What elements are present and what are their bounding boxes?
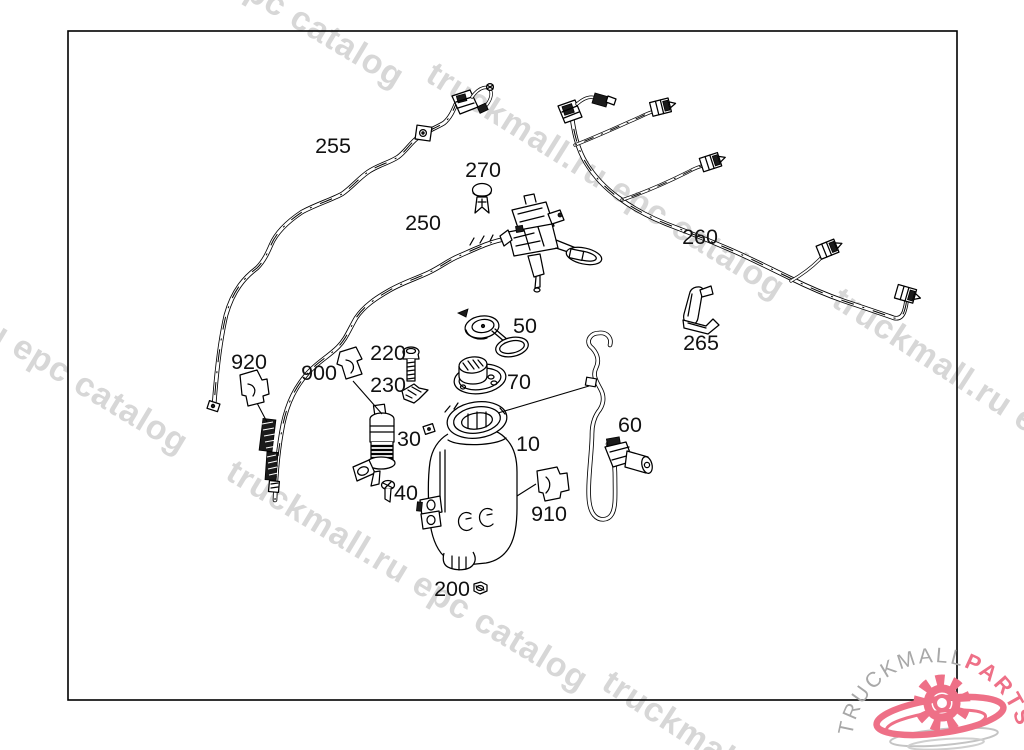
rivet-270 bbox=[473, 184, 492, 214]
hose-clip bbox=[415, 125, 432, 141]
part-label-10[interactable]: 10 bbox=[516, 432, 540, 456]
part-label-220[interactable]: 220 bbox=[370, 341, 406, 365]
part-label-60[interactable]: 60 bbox=[618, 413, 642, 437]
diagram-canvas: truckmall.ru epc catalog truckmall.ru ep… bbox=[0, 0, 1024, 750]
connector-910 bbox=[537, 467, 569, 501]
part-label-920[interactable]: 920 bbox=[231, 350, 267, 374]
washer-jet bbox=[699, 151, 727, 172]
leader-910 bbox=[517, 484, 536, 496]
part-label-265[interactable]: 265 bbox=[683, 331, 719, 355]
watermark-stripe: truckmall.ru epc catalog bbox=[0, 215, 195, 461]
watermark-stripe: truckmall.ru epc catalog bbox=[826, 280, 1024, 538]
catalog-page: truckmall.ru epc catalog truckmall.ru ep… bbox=[0, 0, 1024, 750]
washer-jet bbox=[650, 97, 678, 117]
part-label-910[interactable]: 910 bbox=[531, 502, 567, 526]
logo-gear-icon bbox=[914, 675, 970, 731]
pump-30 bbox=[353, 404, 395, 486]
washer-jet bbox=[894, 285, 922, 305]
screw-40 bbox=[382, 481, 395, 503]
washer-jet bbox=[816, 237, 844, 259]
part-label-40[interactable]: 40 bbox=[394, 481, 418, 505]
part-label-200[interactable]: 200 bbox=[434, 577, 470, 601]
part-label-270[interactable]: 270 bbox=[465, 158, 501, 182]
part-label-250[interactable]: 250 bbox=[405, 211, 441, 235]
part-label-255[interactable]: 255 bbox=[315, 134, 351, 158]
part-label-30[interactable]: 30 bbox=[397, 427, 421, 451]
part-label-50[interactable]: 50 bbox=[513, 314, 537, 338]
reservoir-10 bbox=[416, 398, 517, 570]
hose-end-fitting bbox=[207, 401, 220, 412]
bracket-265 bbox=[683, 286, 719, 334]
harness-260-connector bbox=[558, 93, 616, 123]
part-label-900[interactable]: 900 bbox=[301, 361, 337, 385]
part-label-260[interactable]: 260 bbox=[682, 225, 718, 249]
nut-200 bbox=[474, 582, 487, 594]
logo: TRUCKMALLPARTS bbox=[834, 644, 1024, 750]
part-label-230[interactable]: 230 bbox=[370, 373, 406, 397]
connector-920 bbox=[240, 370, 269, 406]
strainer-70 bbox=[452, 356, 508, 397]
hose-60-pump bbox=[605, 437, 654, 475]
part-label-70[interactable]: 70 bbox=[507, 370, 531, 394]
leader-920 bbox=[257, 403, 267, 422]
watermark-stripe: truckmall.ru epc catalog bbox=[36, 0, 411, 96]
connector-900 bbox=[337, 347, 362, 379]
